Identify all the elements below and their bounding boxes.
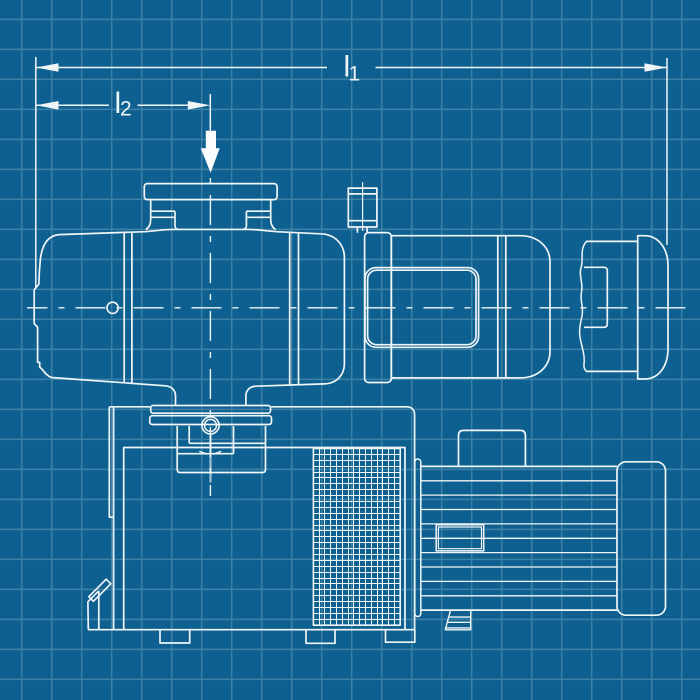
svg-text:2: 2 (120, 98, 132, 121)
svg-text:1: 1 (349, 63, 361, 86)
